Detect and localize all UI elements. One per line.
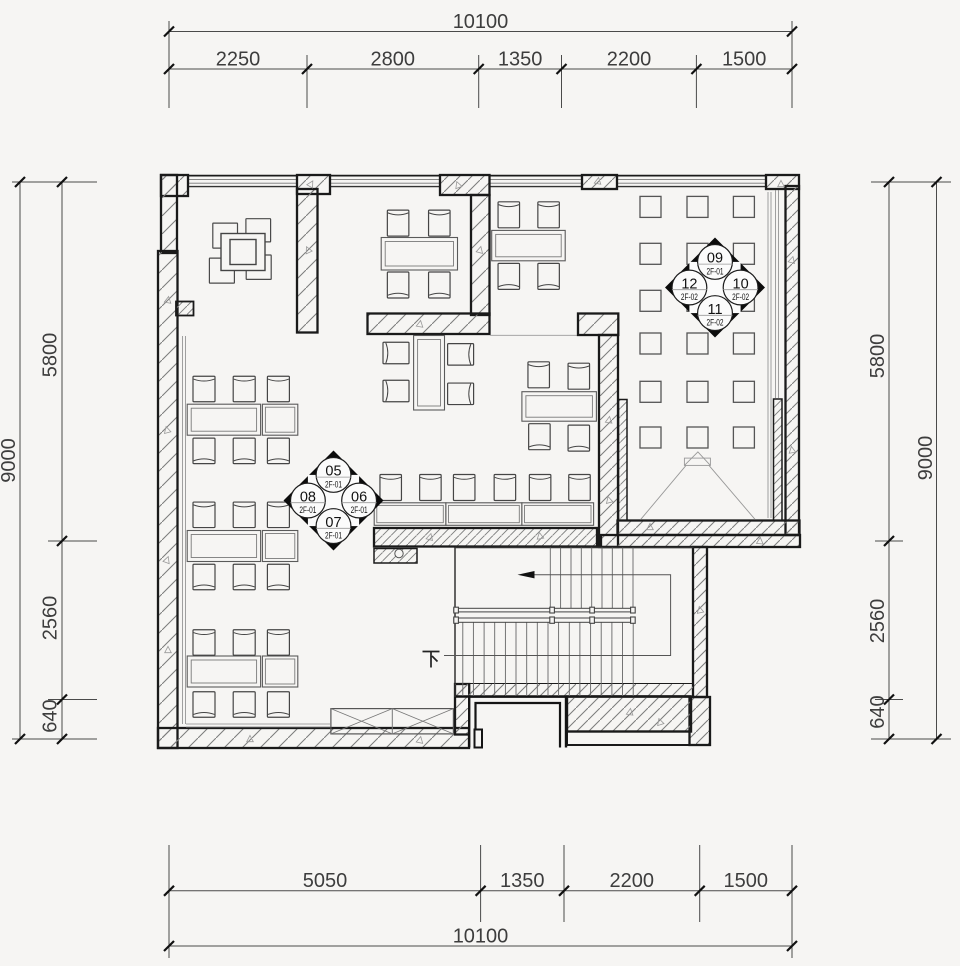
svg-text:2560: 2560 bbox=[40, 596, 62, 641]
svg-text:12: 12 bbox=[681, 276, 697, 292]
svg-text:2F-01: 2F-01 bbox=[351, 505, 368, 515]
svg-text:11: 11 bbox=[707, 302, 722, 318]
svg-text:07: 07 bbox=[325, 515, 341, 531]
svg-text:2200: 2200 bbox=[607, 49, 652, 71]
svg-text:08: 08 bbox=[300, 489, 316, 505]
svg-text:9000: 9000 bbox=[915, 436, 937, 481]
svg-text:1500: 1500 bbox=[722, 49, 767, 71]
svg-text:1350: 1350 bbox=[500, 870, 545, 892]
svg-text:2800: 2800 bbox=[371, 49, 416, 71]
svg-text:5800: 5800 bbox=[867, 334, 889, 379]
svg-text:06: 06 bbox=[351, 489, 367, 505]
svg-text:2250: 2250 bbox=[216, 49, 261, 71]
svg-text:2F-02: 2F-02 bbox=[681, 292, 698, 302]
svg-text:640: 640 bbox=[40, 699, 62, 732]
svg-text:2F-02: 2F-02 bbox=[732, 292, 749, 302]
svg-text:9000: 9000 bbox=[0, 438, 20, 483]
svg-text:10: 10 bbox=[733, 276, 749, 292]
svg-text:1500: 1500 bbox=[724, 870, 769, 892]
svg-text:2F-02: 2F-02 bbox=[707, 318, 724, 328]
svg-text:2200: 2200 bbox=[610, 870, 655, 892]
svg-text:1350: 1350 bbox=[498, 49, 543, 71]
svg-text:2F-01: 2F-01 bbox=[325, 479, 342, 489]
svg-text:10100: 10100 bbox=[453, 11, 509, 33]
svg-text:5050: 5050 bbox=[303, 870, 348, 892]
svg-text:10100: 10100 bbox=[453, 926, 509, 948]
svg-text:05: 05 bbox=[325, 464, 341, 480]
svg-text:5800: 5800 bbox=[40, 333, 62, 378]
svg-text:2560: 2560 bbox=[867, 599, 889, 644]
svg-text:09: 09 bbox=[707, 251, 723, 267]
svg-text:2F-01: 2F-01 bbox=[707, 266, 724, 276]
svg-text:2F-01: 2F-01 bbox=[325, 531, 342, 541]
svg-text:2F-01: 2F-01 bbox=[299, 505, 316, 515]
svg-text:640: 640 bbox=[867, 695, 889, 728]
